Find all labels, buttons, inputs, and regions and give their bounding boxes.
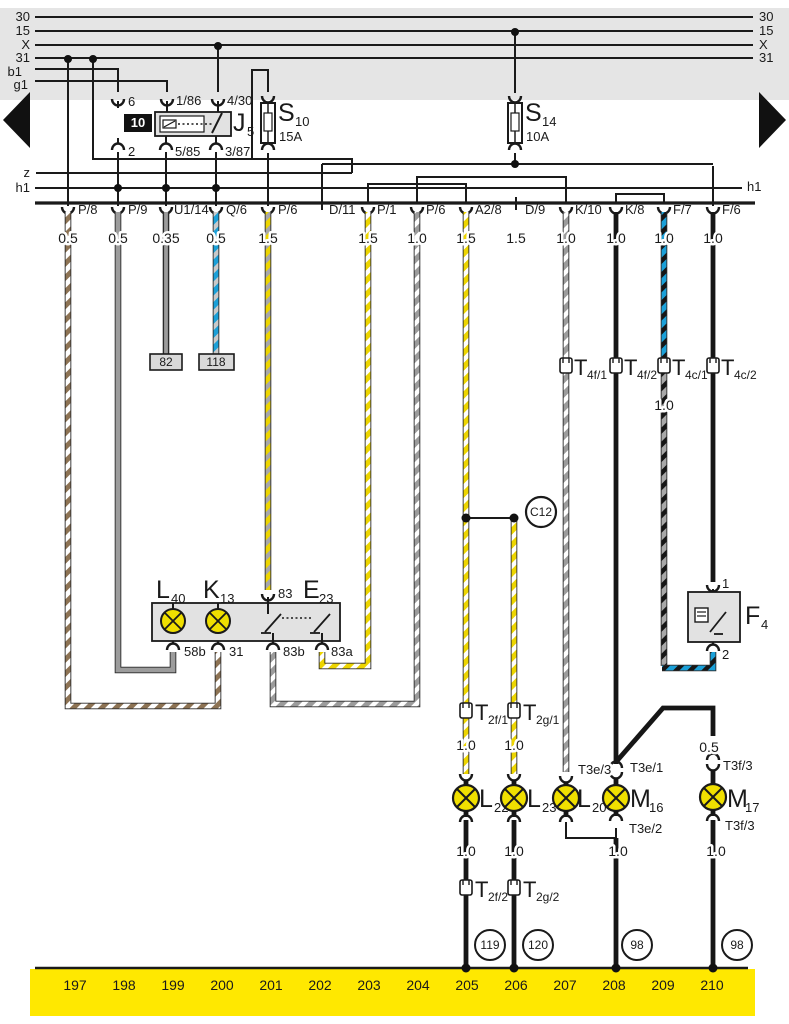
svg-text:T: T [523, 877, 536, 902]
switch-e23: L 40 K 13 83 E 23 58b 31 83b 83a [152, 576, 353, 659]
e23-pin-83a: 83a [331, 644, 353, 659]
label-t3e1: T3e/1 [630, 760, 663, 775]
gauge-p8: 0.5 [58, 230, 78, 246]
svg-text:2g/1: 2g/1 [536, 713, 560, 727]
bus-label-30-left: 30 [16, 9, 30, 24]
fuse-s10-designation: S [278, 99, 295, 127]
track-198: 198 [112, 977, 136, 993]
line-label-z: z [24, 165, 31, 180]
junction-c12-label: C12 [530, 505, 552, 519]
track-199: 199 [161, 977, 185, 993]
relay-pin-2: 2 [128, 144, 135, 159]
bus-label-31-left: 31 [16, 50, 30, 65]
line-label-h1-left: h1 [16, 180, 30, 195]
ground-circles: 119 120 98 98 [475, 930, 752, 960]
f4-pin-1: 1 [722, 576, 729, 591]
svg-text:L: L [479, 785, 493, 813]
row-label-d9: D/9 [525, 202, 545, 217]
row-label-p1: P/1 [377, 202, 397, 217]
svg-text:2f/2: 2f/2 [488, 890, 508, 904]
gauge-under-m17: 1.0 [706, 843, 726, 859]
track-207: 207 [553, 977, 577, 993]
track-206: 206 [504, 977, 528, 993]
svg-text:T: T [475, 877, 488, 902]
e23-pin-83b: 83b [283, 644, 305, 659]
svg-text:L: L [527, 785, 541, 813]
svg-text:16: 16 [649, 800, 663, 815]
f4-pin-2: 2 [722, 647, 729, 662]
row-label-u114: U1/14 [174, 202, 209, 217]
gauge-under-t2f1: 1.0 [456, 737, 476, 753]
bus-label-30-right: 30 [759, 9, 773, 24]
inline-connectors-middle: T 2f/1 T 2g/1 1.0 1.0 [456, 700, 559, 753]
ground-circle-98b: 98 [730, 938, 744, 952]
row-label-p6b: P/6 [426, 202, 446, 217]
gauge-u114: 0.35 [152, 230, 179, 246]
track-205: 205 [455, 977, 479, 993]
relay-pin-4-30: 4/30 [227, 93, 252, 108]
e23-pin-58b: 58b [184, 644, 206, 659]
row-label-k10: K/10 [575, 202, 602, 217]
row-label-k8: K/8 [625, 202, 645, 217]
bus-label-15-left: 15 [16, 23, 30, 38]
gauge-under-l22: 1.0 [456, 843, 476, 859]
connector-row: P/8 P/9 U1/14 Q/6 P/6 D/11 P/1 P/6 A2/8 … [35, 197, 755, 217]
gauge-p9: 0.5 [108, 230, 128, 246]
svg-text:T: T [523, 700, 536, 725]
lamp-l40-designation: L [156, 576, 170, 604]
row-label-f6: F/6 [722, 202, 741, 217]
fuse-s14-sub: 14 [542, 114, 556, 129]
svg-text:4c/2: 4c/2 [734, 368, 757, 382]
track-210: 210 [700, 977, 724, 993]
gauge-f7: 1.0 [654, 230, 674, 246]
svg-text:T: T [475, 700, 488, 725]
inline-connectors-upper: T 4f/1 T 4f/2 T 4c/1 T 4c/2 1.0 [560, 355, 757, 413]
gauge-p6b: 1.0 [407, 230, 427, 246]
gauge-p6a: 1.5 [258, 230, 278, 246]
svg-text:T: T [624, 355, 637, 380]
switch-f4: F 4 1 2 [688, 576, 768, 662]
e23-pin-83: 83 [278, 586, 292, 601]
gauge-a28: 1.5 [456, 230, 476, 246]
label-t3f3-top: T3f/3 [723, 758, 753, 773]
row-label-q6: Q/6 [226, 202, 247, 217]
terminal-boxes: 82 118 [150, 354, 234, 370]
row-label-d11: D/11 [329, 202, 356, 217]
lamp-k13-designation: K [203, 576, 220, 604]
row-label-p8: P/8 [78, 202, 98, 217]
fuse-s10-rating: 15A [279, 129, 302, 144]
svg-text:4: 4 [761, 617, 768, 632]
row-label-f7: F/7 [673, 202, 692, 217]
svg-text:4f/1: 4f/1 [587, 368, 607, 382]
svg-text:2f/1: 2f/1 [488, 713, 508, 727]
relay-pin-5-85: 5/85 [175, 144, 200, 159]
lamp-l23: L 23 [501, 774, 556, 822]
svg-text:17: 17 [745, 800, 759, 815]
svg-text:T: T [574, 355, 587, 380]
track-203: 203 [357, 977, 381, 993]
terminal-118: 118 [206, 355, 225, 369]
terminal-82: 82 [159, 355, 173, 369]
row-label-p9: P/9 [128, 202, 148, 217]
wiring-diagram: 30 15 X 31 30 15 X 31 b1 g1 z h [0, 0, 789, 1024]
svg-text:M: M [630, 785, 651, 813]
svg-text:13: 13 [220, 591, 234, 606]
track-202: 202 [308, 977, 332, 993]
label-t3e2: T3e/2 [629, 821, 662, 836]
svg-text:L: L [577, 785, 591, 813]
gauge-p1: 1.5 [358, 230, 378, 246]
continuation-arrow-right [759, 92, 786, 148]
track-band-fill [30, 969, 755, 1016]
switch-f4-designation: F [745, 602, 760, 630]
track-208: 208 [602, 977, 626, 993]
row-label-p6a: P/6 [278, 202, 298, 217]
gauge-before-t3f3: 0.5 [699, 739, 719, 755]
relay-pin-1-86: 1/86 [176, 93, 201, 108]
bus-label-g1: g1 [14, 77, 28, 92]
inline-connectors-lower: T 2f/2 T 2g/2 [460, 877, 560, 904]
gauge-under-t2g1: 1.0 [504, 737, 524, 753]
svg-text:T: T [721, 355, 734, 380]
gauge-labels: 0.5 0.5 0.35 0.5 1.5 1.5 1.0 1.5 1.5 1.0… [58, 230, 723, 246]
ground-circle-98a: 98 [630, 938, 644, 952]
track-200: 200 [210, 977, 234, 993]
relay-designation-sub: 5 [247, 124, 254, 139]
e23-pin-31: 31 [229, 644, 243, 659]
gauge-under-t4c1: 1.0 [654, 397, 674, 413]
ground-circle-119: 119 [480, 938, 499, 952]
continuation-arrow-left [3, 92, 30, 148]
track-band: 197 198 199 200 201 202 203 204 205 206 … [30, 964, 755, 1017]
fuse-s14-rating: 10A [526, 129, 549, 144]
lamp-l40-symbol [161, 609, 185, 633]
track-209: 209 [651, 977, 675, 993]
gauge-d9: 1.5 [506, 230, 526, 246]
line-label-h1-right: h1 [747, 179, 761, 194]
gauge-k8: 1.0 [606, 230, 626, 246]
svg-text:23: 23 [319, 591, 333, 606]
switch-e23-designation: E [303, 576, 320, 604]
track-201: 201 [259, 977, 283, 993]
svg-text:40: 40 [171, 591, 185, 606]
relay-j5: 10 J 5 6 1/86 4/30 2 5/85 3/87 [112, 93, 254, 159]
label-t3f3-bottom: T3f/3 [725, 818, 755, 833]
track-204: 204 [406, 977, 430, 993]
gauge-f6: 1.0 [703, 230, 723, 246]
fuse-s14: S 14 10A [508, 96, 556, 150]
gauge-under-m16: 1.0 [608, 843, 628, 859]
relay-pin-6: 6 [128, 94, 135, 109]
relay-designation: J [233, 109, 246, 137]
svg-text:T: T [672, 355, 685, 380]
svg-text:4c/1: 4c/1 [685, 368, 708, 382]
lamp-l20: L 20 [553, 776, 606, 822]
lamp-k13-symbol [206, 609, 230, 633]
track-197: 197 [63, 977, 87, 993]
relay-pin-3-87: 3/87 [225, 144, 250, 159]
bus-label-15-right: 15 [759, 23, 773, 38]
gauge-under-l23: 1.0 [504, 843, 524, 859]
row-label-a28: A2/8 [475, 202, 502, 217]
fuse-s10: S 10 15A [261, 96, 309, 150]
gauge-k10: 1.0 [556, 230, 576, 246]
fuse-s14-designation: S [525, 99, 542, 127]
gauge-q6: 0.5 [206, 230, 226, 246]
fuse-s10-sub: 10 [295, 114, 309, 129]
svg-text:4f/2: 4f/2 [637, 368, 657, 382]
junction-c12: C12 [526, 497, 556, 527]
ground-circle-120: 120 [528, 938, 548, 952]
relay-slot-number: 10 [131, 115, 145, 130]
label-t3e3: T3e/3 [578, 762, 611, 777]
bus-label-31-right: 31 [759, 50, 773, 65]
svg-text:2g/2: 2g/2 [536, 890, 560, 904]
